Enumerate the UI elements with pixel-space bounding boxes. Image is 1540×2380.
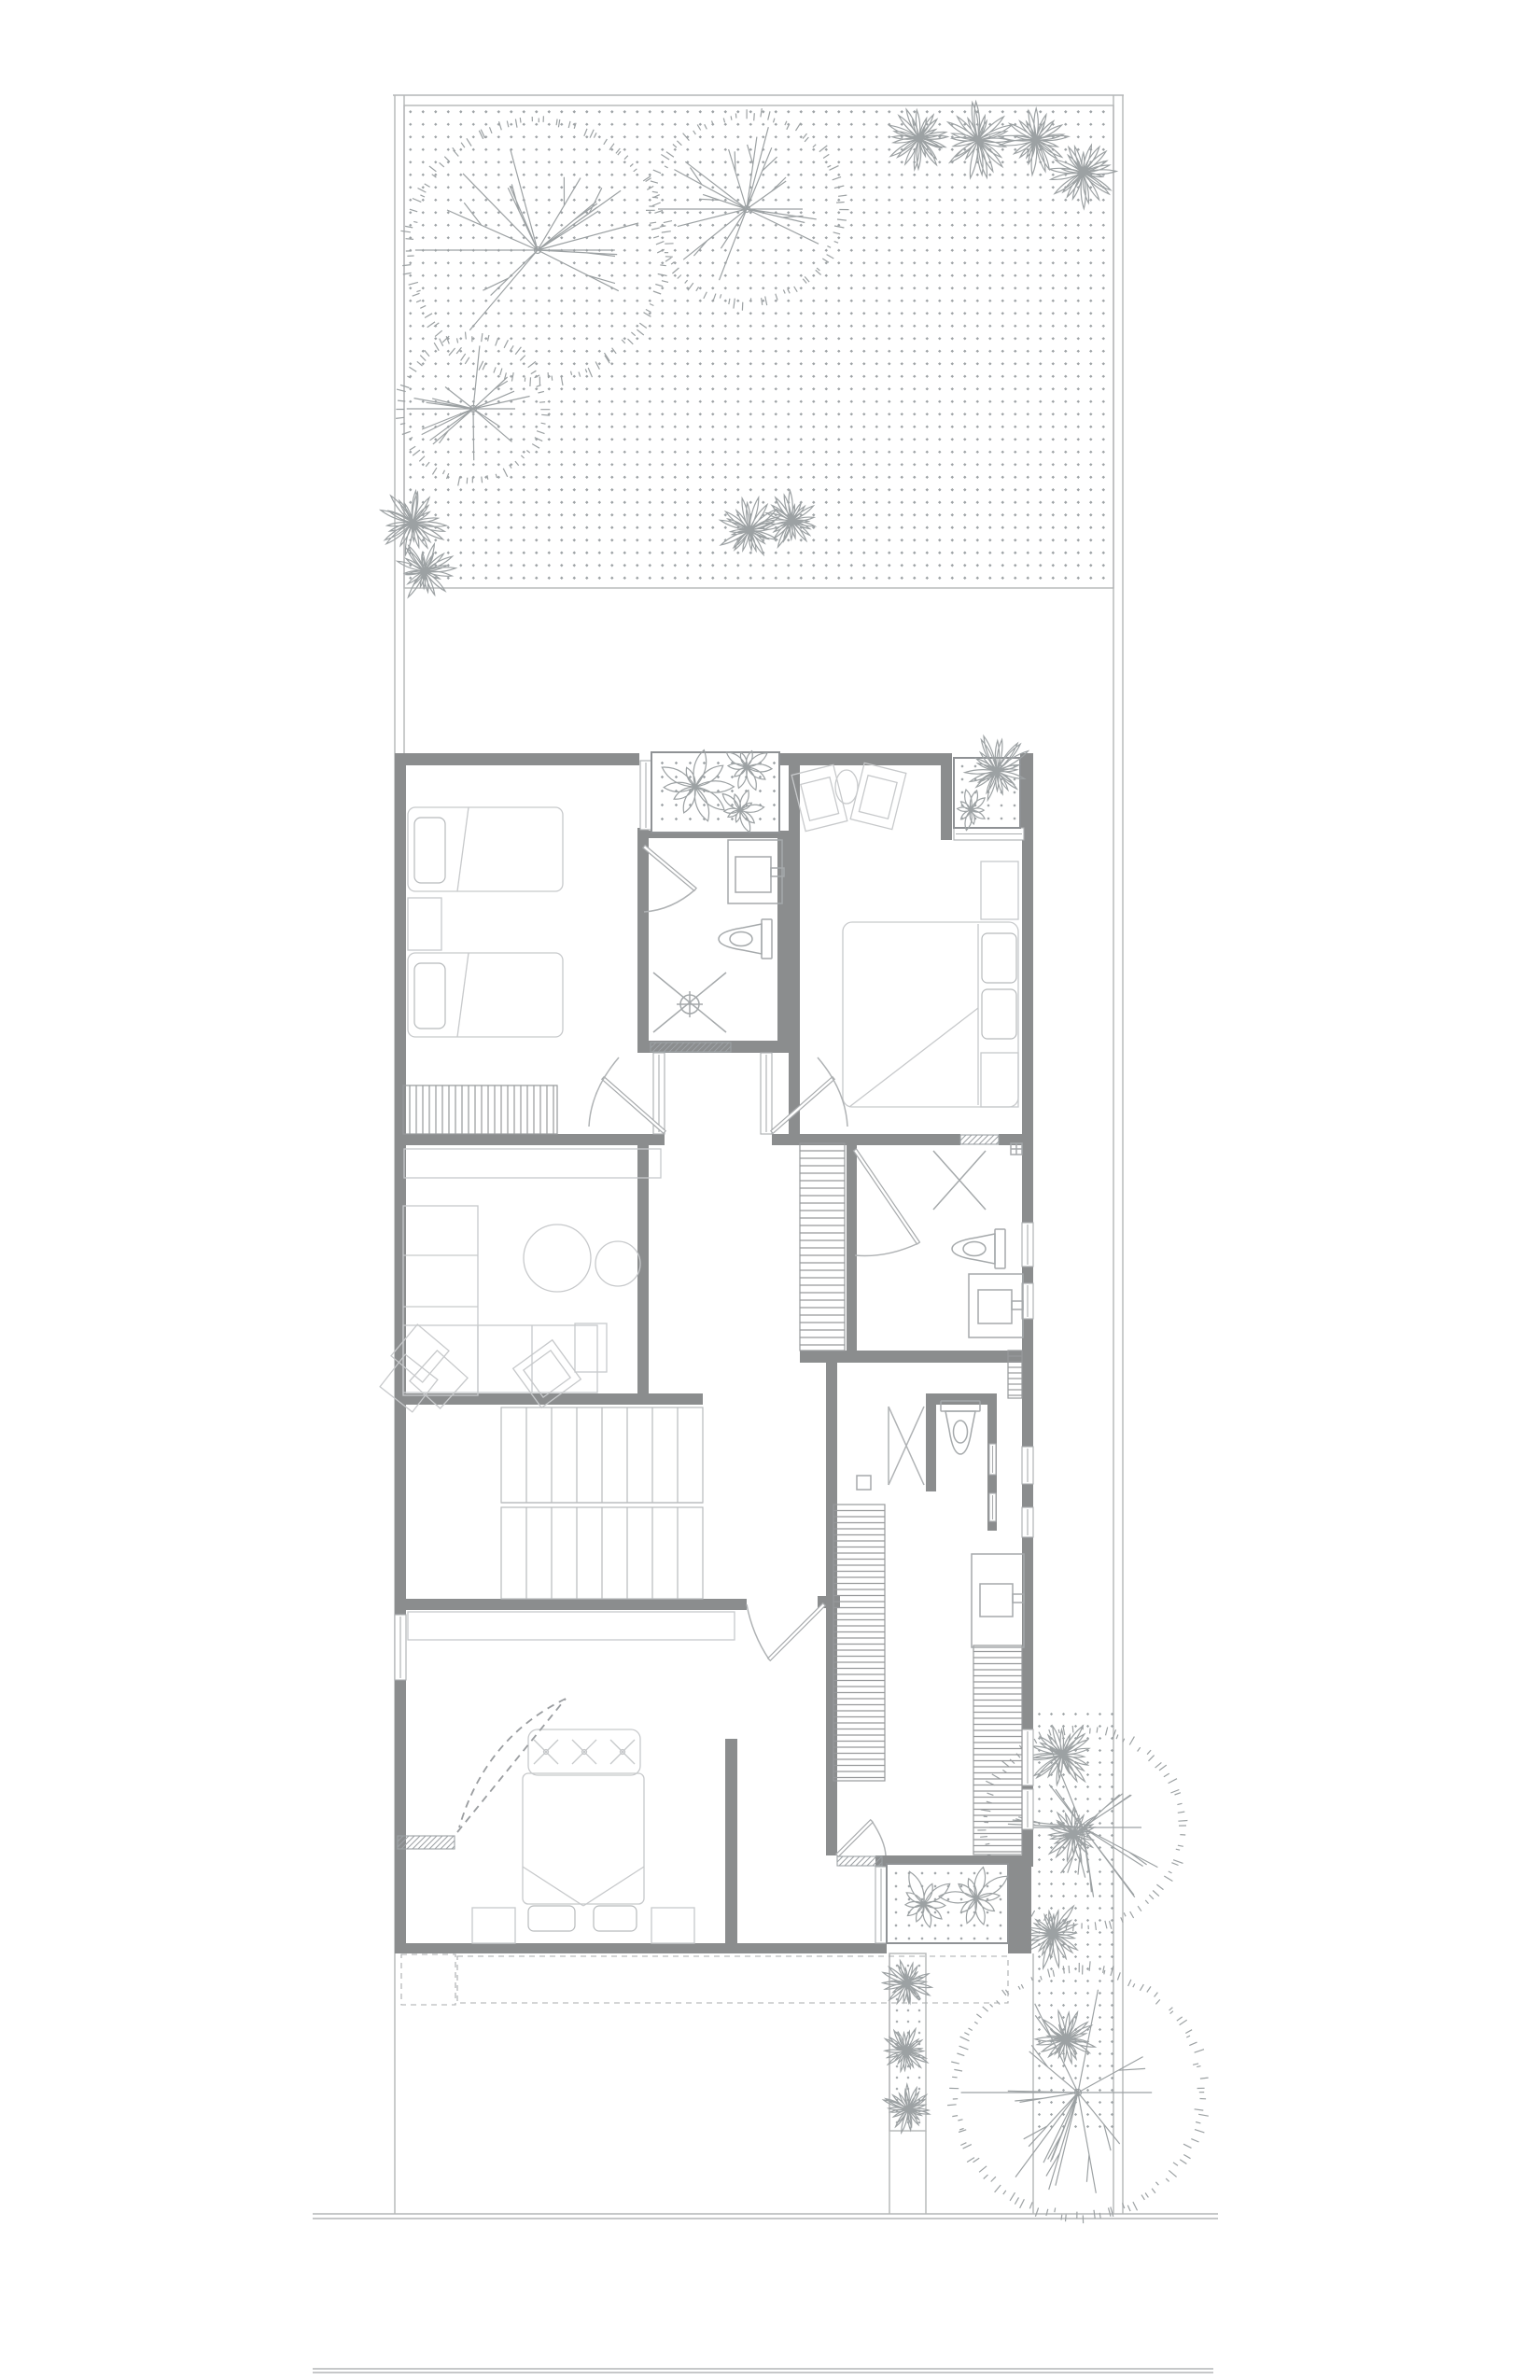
thresholds <box>398 1043 999 1866</box>
garden <box>381 102 1116 2128</box>
floor-plan-page <box>0 0 1540 2380</box>
furniture <box>380 763 1018 2005</box>
side-yard-planting <box>883 1725 1209 2223</box>
planters <box>651 736 1028 1943</box>
site-boundary <box>313 95 1218 2373</box>
walls <box>395 753 1033 1953</box>
fixtures <box>653 840 1024 1647</box>
floor-plan-canvas <box>0 0 1540 2380</box>
